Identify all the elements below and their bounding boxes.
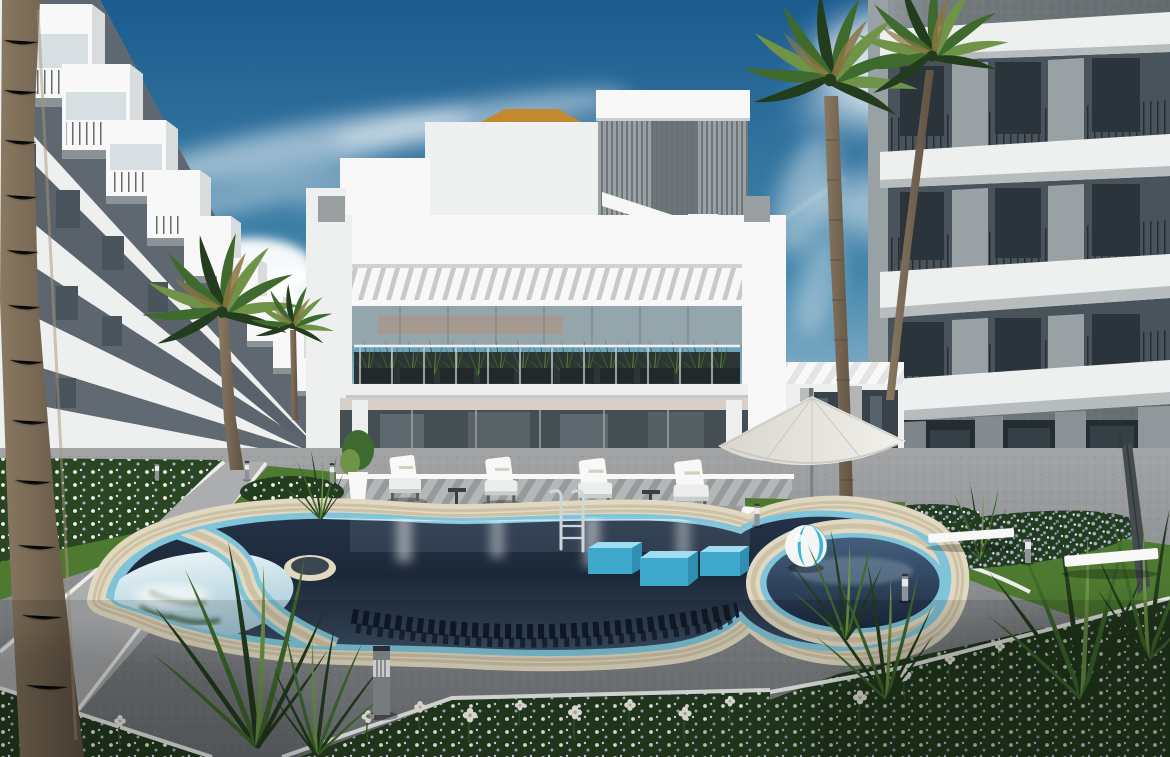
architectural-rendering [0,0,1170,757]
frame-top-band [306,215,786,268]
planter-boxes [360,368,740,383]
render-canvas [0,0,1170,757]
beach-ball [785,525,827,573]
upper-glass-lounge [352,306,742,346]
vignette [0,600,1170,757]
roof-pergola [352,268,742,306]
